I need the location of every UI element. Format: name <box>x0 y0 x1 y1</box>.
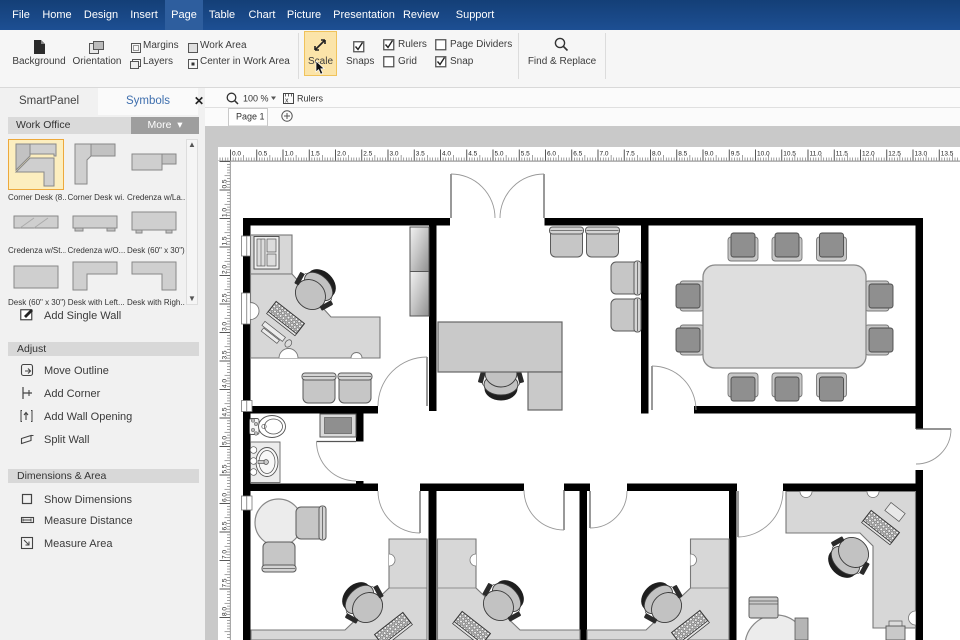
svg-text:7.5: 7.5 <box>222 578 229 587</box>
svg-text:12.0: 12.0 <box>862 151 875 158</box>
svg-text:11.0: 11.0 <box>810 151 823 158</box>
svg-text:3.0: 3.0 <box>222 322 229 331</box>
svg-text:5.0: 5.0 <box>222 436 229 445</box>
svg-text:12.5: 12.5 <box>888 151 901 158</box>
svg-text:1.5: 1.5 <box>222 236 229 245</box>
svg-text:10.0: 10.0 <box>757 151 770 158</box>
svg-text:2.0: 2.0 <box>337 151 346 158</box>
svg-text:13.5: 13.5 <box>941 151 954 158</box>
svg-text:Page 1: Page 1 <box>236 112 265 122</box>
svg-text:6.0: 6.0 <box>547 151 556 158</box>
svg-text:x: x <box>285 98 289 105</box>
svg-text:Rulers: Rulers <box>297 94 324 104</box>
svg-text:3.5: 3.5 <box>222 350 229 359</box>
svg-text:10.5: 10.5 <box>783 151 796 158</box>
svg-text:3.0: 3.0 <box>390 151 399 158</box>
svg-text:8.0: 8.0 <box>222 607 229 616</box>
svg-text:7.0: 7.0 <box>222 550 229 559</box>
svg-text:11.5: 11.5 <box>836 151 849 158</box>
svg-text:100 %: 100 % <box>243 94 269 104</box>
svg-text:5.5: 5.5 <box>222 464 229 473</box>
svg-text:1.0: 1.0 <box>285 151 294 158</box>
svg-text:9.0: 9.0 <box>705 151 714 158</box>
svg-text:7.5: 7.5 <box>626 151 635 158</box>
svg-text:7.0: 7.0 <box>600 151 609 158</box>
svg-text:0.5: 0.5 <box>222 179 229 188</box>
svg-text:4.0: 4.0 <box>222 379 229 388</box>
svg-text:1.5: 1.5 <box>311 151 320 158</box>
svg-text:0.0: 0.0 <box>232 151 241 158</box>
svg-text:6.5: 6.5 <box>573 151 582 158</box>
svg-text:4.0: 4.0 <box>442 151 451 158</box>
svg-text:2.5: 2.5 <box>222 293 229 302</box>
svg-text:3.5: 3.5 <box>416 151 425 158</box>
svg-text:6.5: 6.5 <box>222 521 229 530</box>
svg-text:8.5: 8.5 <box>678 151 687 158</box>
svg-text:4.5: 4.5 <box>222 407 229 416</box>
svg-text:0.5: 0.5 <box>258 151 267 158</box>
svg-text:2.0: 2.0 <box>222 265 229 274</box>
svg-text:5.5: 5.5 <box>521 151 530 158</box>
svg-text:2.5: 2.5 <box>363 151 372 158</box>
svg-text:6.0: 6.0 <box>222 493 229 502</box>
svg-text:4.5: 4.5 <box>468 151 477 158</box>
svg-text:13.0: 13.0 <box>915 151 928 158</box>
svg-text:5.0: 5.0 <box>495 151 504 158</box>
svg-text:9.5: 9.5 <box>731 151 740 158</box>
svg-text:1.0: 1.0 <box>222 208 229 217</box>
svg-text:8.0: 8.0 <box>652 151 661 158</box>
